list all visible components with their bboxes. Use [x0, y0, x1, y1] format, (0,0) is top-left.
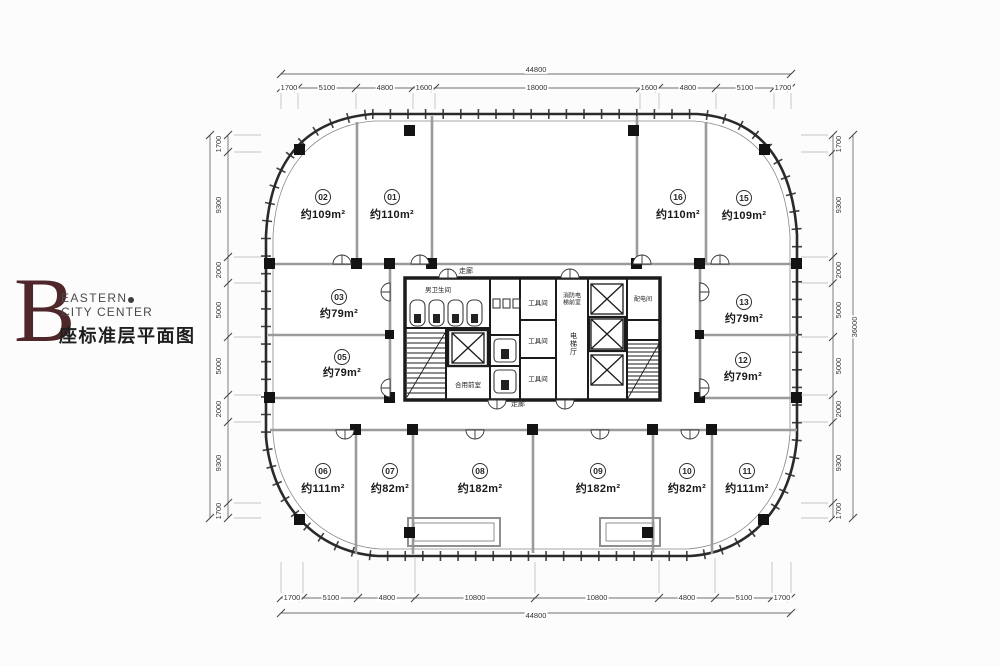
- dim-label: 2000: [215, 261, 223, 280]
- plan-title: 座标准层平面图: [59, 322, 196, 348]
- room-06-area: 约111m²: [301, 480, 344, 496]
- room-12-area: 约79m²: [724, 368, 762, 384]
- dim-label: 10800: [464, 594, 487, 602]
- floor-plan-page: B EASTERN CITY CENTER 座标准层平面图 02 约109m² …: [0, 0, 1000, 666]
- room-12-number: 12: [735, 352, 751, 368]
- room-01-area: 约110m²: [370, 206, 414, 222]
- room-01-number: 01: [384, 189, 400, 205]
- dim-label: 5000: [835, 357, 843, 376]
- dim-label: 1700: [215, 502, 223, 521]
- room-16-number: 16: [670, 189, 686, 205]
- room-13-area: 约79m²: [725, 310, 763, 326]
- dim-label: 9300: [835, 196, 843, 215]
- shared-vestibule-label: 合用前室: [455, 383, 481, 390]
- room-15-area: 约109m²: [722, 207, 767, 223]
- brand-name-line1: EASTERN: [61, 291, 127, 305]
- dim-label: 1700: [280, 84, 299, 92]
- room-05-number: 05: [334, 349, 350, 365]
- room-02-area: 约109m²: [301, 206, 346, 222]
- room-02-number: 02: [315, 189, 331, 205]
- room-07-number: 07: [382, 463, 398, 479]
- dim-label: 4800: [378, 594, 397, 602]
- dim-label: 2000: [215, 400, 223, 419]
- dim-top-total: 44800: [525, 66, 548, 74]
- dim-label: 2000: [835, 400, 843, 419]
- dim-label: 2000: [835, 261, 843, 280]
- brand-name-line2: CITY CENTER: [61, 305, 153, 319]
- dim-label: 9300: [215, 196, 223, 215]
- dim-label: 5100: [318, 84, 337, 92]
- dim-right-total: 36000: [851, 316, 859, 339]
- room-15-number: 15: [736, 190, 752, 206]
- dim-label: 10800: [586, 594, 609, 602]
- room-05-area: 约79m²: [323, 364, 361, 380]
- power-room-label: 配电间: [634, 297, 652, 303]
- toilet-label: 男卫生间: [425, 288, 451, 295]
- dim-bottom-total: 44800: [525, 612, 548, 620]
- room-06-number: 06: [315, 463, 331, 479]
- room-11-area: 约111m²: [725, 480, 768, 496]
- room-07-area: 约82m²: [371, 480, 409, 496]
- dim-label: 5000: [215, 301, 223, 320]
- dim-label: 1700: [835, 502, 843, 521]
- room-08-number: 08: [472, 463, 488, 479]
- room-11-number: 11: [739, 463, 755, 479]
- dim-label: 1700: [215, 135, 223, 154]
- dim-label: 4800: [678, 594, 697, 602]
- dim-label: 5100: [735, 594, 754, 602]
- dim-label: 5000: [215, 357, 223, 376]
- dim-label: 4800: [376, 84, 395, 92]
- corridor-label: 走廊: [459, 266, 473, 276]
- dim-label: 5100: [736, 84, 755, 92]
- room-10-number: 10: [679, 463, 695, 479]
- tool-room-label: 工具间: [528, 301, 548, 308]
- room-10-area: 约82m²: [668, 480, 706, 496]
- brand-dot-icon: [128, 297, 134, 303]
- dim-label: 1600: [640, 84, 659, 92]
- dim-label: 5100: [322, 594, 341, 602]
- corridor-label: 走廊: [511, 399, 525, 409]
- room-03-area: 约79m²: [320, 305, 358, 321]
- dim-label: 1700: [773, 594, 792, 602]
- dim-label: 1600: [415, 84, 434, 92]
- elevator-hall-label: 电梯厅: [570, 332, 577, 356]
- room-08-area: 约182m²: [458, 480, 503, 496]
- dim-label: 5000: [835, 301, 843, 320]
- dim-label: 18000: [526, 84, 549, 92]
- dim-label: 1700: [835, 135, 843, 154]
- fire-elevator-lobby-label: 消防电梯前室: [561, 294, 583, 307]
- dim-label: 9300: [835, 454, 843, 473]
- dim-label: 1700: [283, 594, 302, 602]
- room-13-number: 13: [736, 294, 752, 310]
- room-03-number: 03: [331, 289, 347, 305]
- tool-room-label: 工具间: [528, 377, 548, 384]
- room-16-area: 约110m²: [656, 206, 700, 222]
- dim-label: 4800: [679, 84, 698, 92]
- tool-room-label: 工具间: [528, 339, 548, 346]
- room-09-number: 09: [590, 463, 606, 479]
- dim-label: 9300: [215, 454, 223, 473]
- dim-label: 1700: [774, 84, 793, 92]
- room-09-area: 约182m²: [576, 480, 621, 496]
